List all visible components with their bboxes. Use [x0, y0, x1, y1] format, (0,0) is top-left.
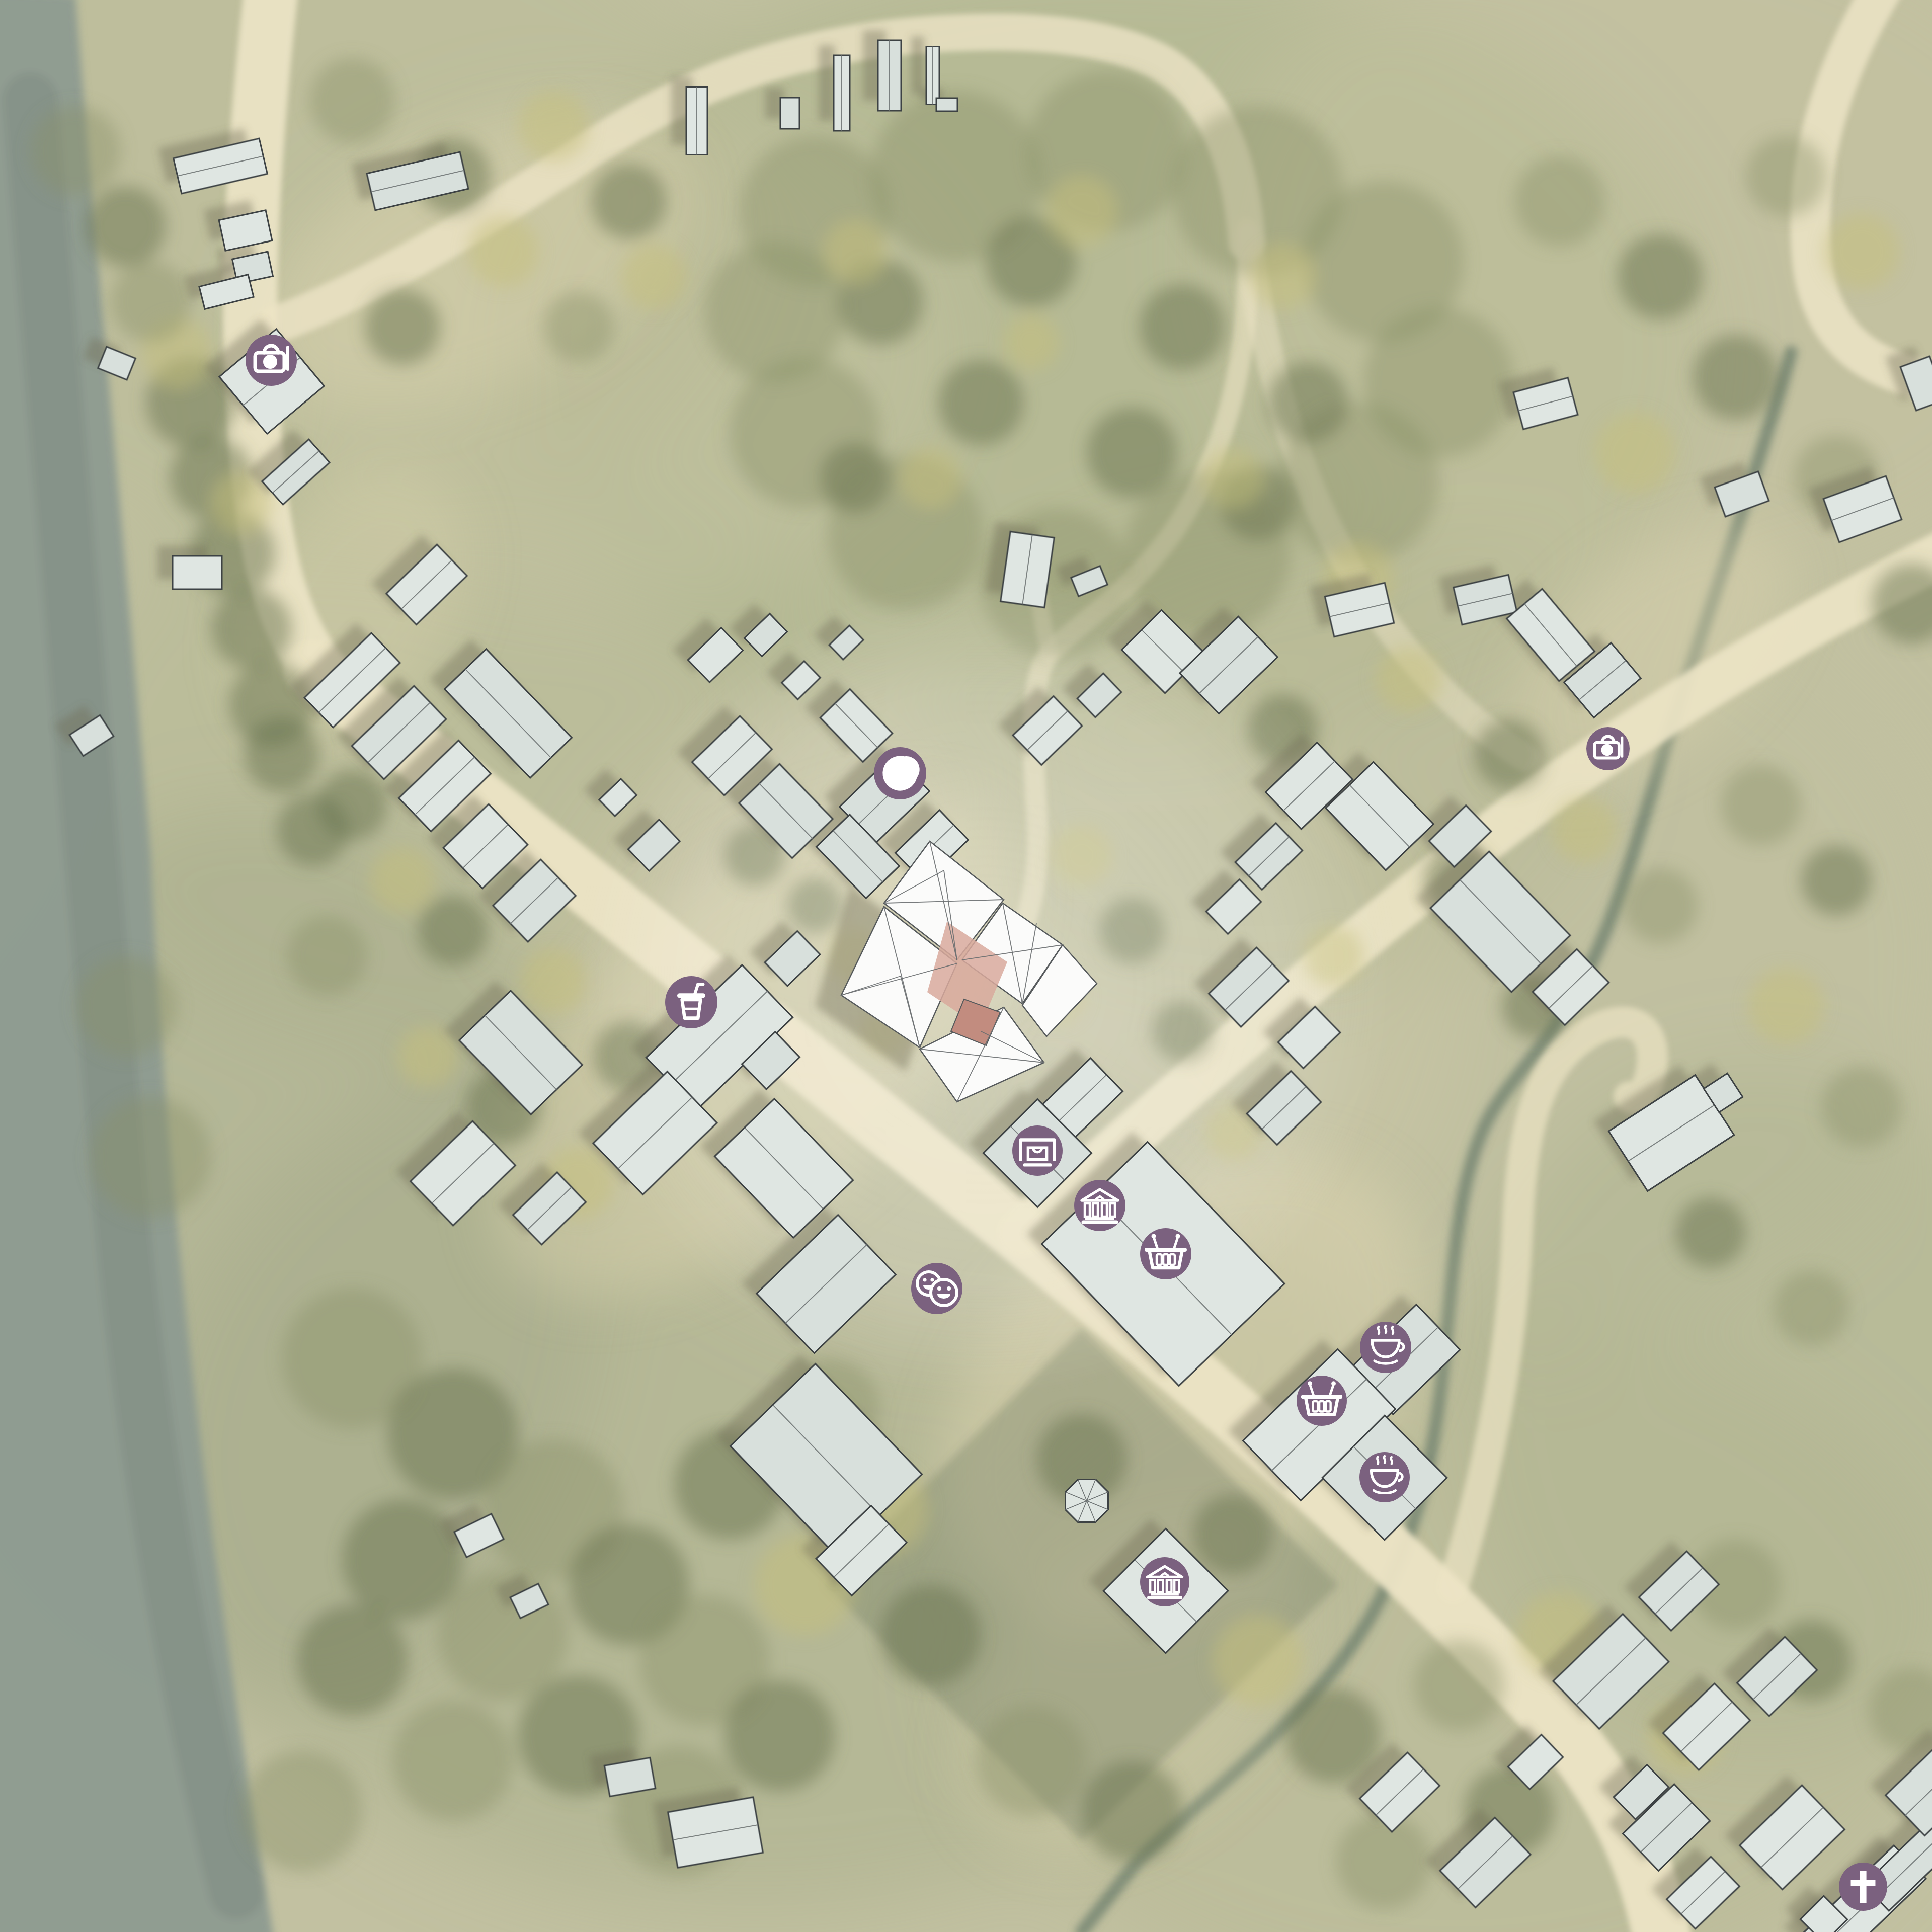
cafe-south-marker[interactable] — [1359, 1452, 1410, 1502]
tree-cluster — [1202, 448, 1263, 508]
tree-cluster — [1595, 413, 1675, 493]
tree-cluster — [1746, 136, 1826, 216]
building-shadow — [911, 37, 924, 95]
tree-cluster — [1376, 647, 1441, 712]
building — [878, 40, 901, 111]
tree-cluster — [342, 1499, 463, 1620]
tree-cluster — [976, 1706, 1087, 1816]
marker-circle[interactable] — [665, 976, 717, 1028]
tree-cluster — [1082, 1761, 1182, 1862]
tree-cluster — [1213, 1615, 1303, 1706]
tree-cluster — [287, 916, 367, 996]
tree-cluster — [418, 896, 488, 966]
tree-cluster — [1192, 1494, 1273, 1575]
tree-cluster — [365, 289, 440, 365]
tree-cluster — [242, 1751, 362, 1872]
tree-cluster — [824, 220, 887, 283]
tree-cluster — [1087, 408, 1177, 498]
tree-cluster — [1140, 284, 1225, 370]
tree-cluster — [30, 106, 121, 196]
tree-cluster — [1474, 719, 1545, 790]
tree-cluster — [111, 262, 191, 342]
tree-cluster — [1552, 797, 1618, 863]
tree-cluster — [211, 589, 292, 669]
building — [834, 55, 850, 131]
tree-cluster — [621, 244, 687, 309]
tree-cluster — [91, 1097, 211, 1218]
town-hall-marker[interactable] — [1074, 1180, 1125, 1231]
tree-cluster — [880, 1585, 981, 1685]
tree-cluster — [725, 1680, 835, 1791]
tree-cluster — [1514, 156, 1605, 247]
tree-cluster — [704, 242, 845, 382]
post-office-marker[interactable] — [1012, 1125, 1063, 1176]
church-marker[interactable] — [1839, 1863, 1887, 1911]
tree-cluster — [317, 770, 387, 840]
photo-spot-east-marker[interactable] — [1586, 727, 1630, 770]
tree-cluster — [1414, 1640, 1504, 1731]
cafe-north-marker[interactable] — [1360, 1322, 1411, 1373]
tree-cluster — [1250, 244, 1316, 309]
building — [936, 98, 957, 111]
tree-cluster — [468, 216, 538, 287]
tree-cluster — [309, 58, 395, 143]
tree-cluster — [543, 292, 614, 362]
takeaway-drinks-marker[interactable] — [665, 976, 717, 1028]
tree-cluster — [76, 956, 177, 1057]
building — [926, 47, 939, 105]
tree-cluster — [1693, 335, 1779, 420]
tree-cluster — [1774, 1270, 1849, 1346]
tree-cluster — [1618, 234, 1703, 319]
tree-cluster — [1748, 969, 1824, 1044]
tree-cluster — [820, 443, 891, 513]
tree-cluster — [1004, 314, 1059, 370]
community-spot-marker[interactable] — [911, 1263, 962, 1314]
tree-cluster — [938, 360, 1024, 445]
tree-cluster — [370, 848, 435, 913]
tree-cluster — [901, 448, 961, 508]
tree-cluster — [1623, 868, 1698, 943]
building — [173, 556, 222, 589]
night-venue-marker[interactable] — [874, 747, 926, 799]
tree-cluster — [1336, 1814, 1431, 1909]
tree-cluster — [86, 186, 166, 267]
market-north-marker[interactable] — [1140, 1228, 1191, 1279]
tree-cluster — [1821, 1067, 1902, 1147]
tree-cluster — [397, 1026, 458, 1087]
building — [686, 87, 707, 155]
pavilion — [1066, 1480, 1108, 1522]
tree-cluster — [1721, 765, 1801, 845]
tree-cluster — [244, 717, 319, 792]
building — [1001, 532, 1055, 608]
building — [780, 98, 799, 129]
tree-cluster — [518, 91, 589, 161]
tree-cluster — [591, 164, 667, 239]
tree-cluster — [1824, 214, 1899, 289]
site-plan-map — [0, 0, 1932, 1932]
tree-cluster — [1268, 362, 1348, 443]
tree-cluster — [1046, 176, 1117, 247]
market-south-marker[interactable] — [1297, 1376, 1347, 1426]
building-shadow — [819, 45, 835, 121]
tree-cluster — [1801, 845, 1872, 916]
tree-cluster — [392, 1701, 513, 1821]
tree-cluster — [297, 1605, 408, 1716]
museum-marker[interactable] — [1140, 1557, 1189, 1606]
tree-cluster — [1675, 1197, 1746, 1268]
photo-spot-west-marker[interactable] — [246, 335, 297, 386]
